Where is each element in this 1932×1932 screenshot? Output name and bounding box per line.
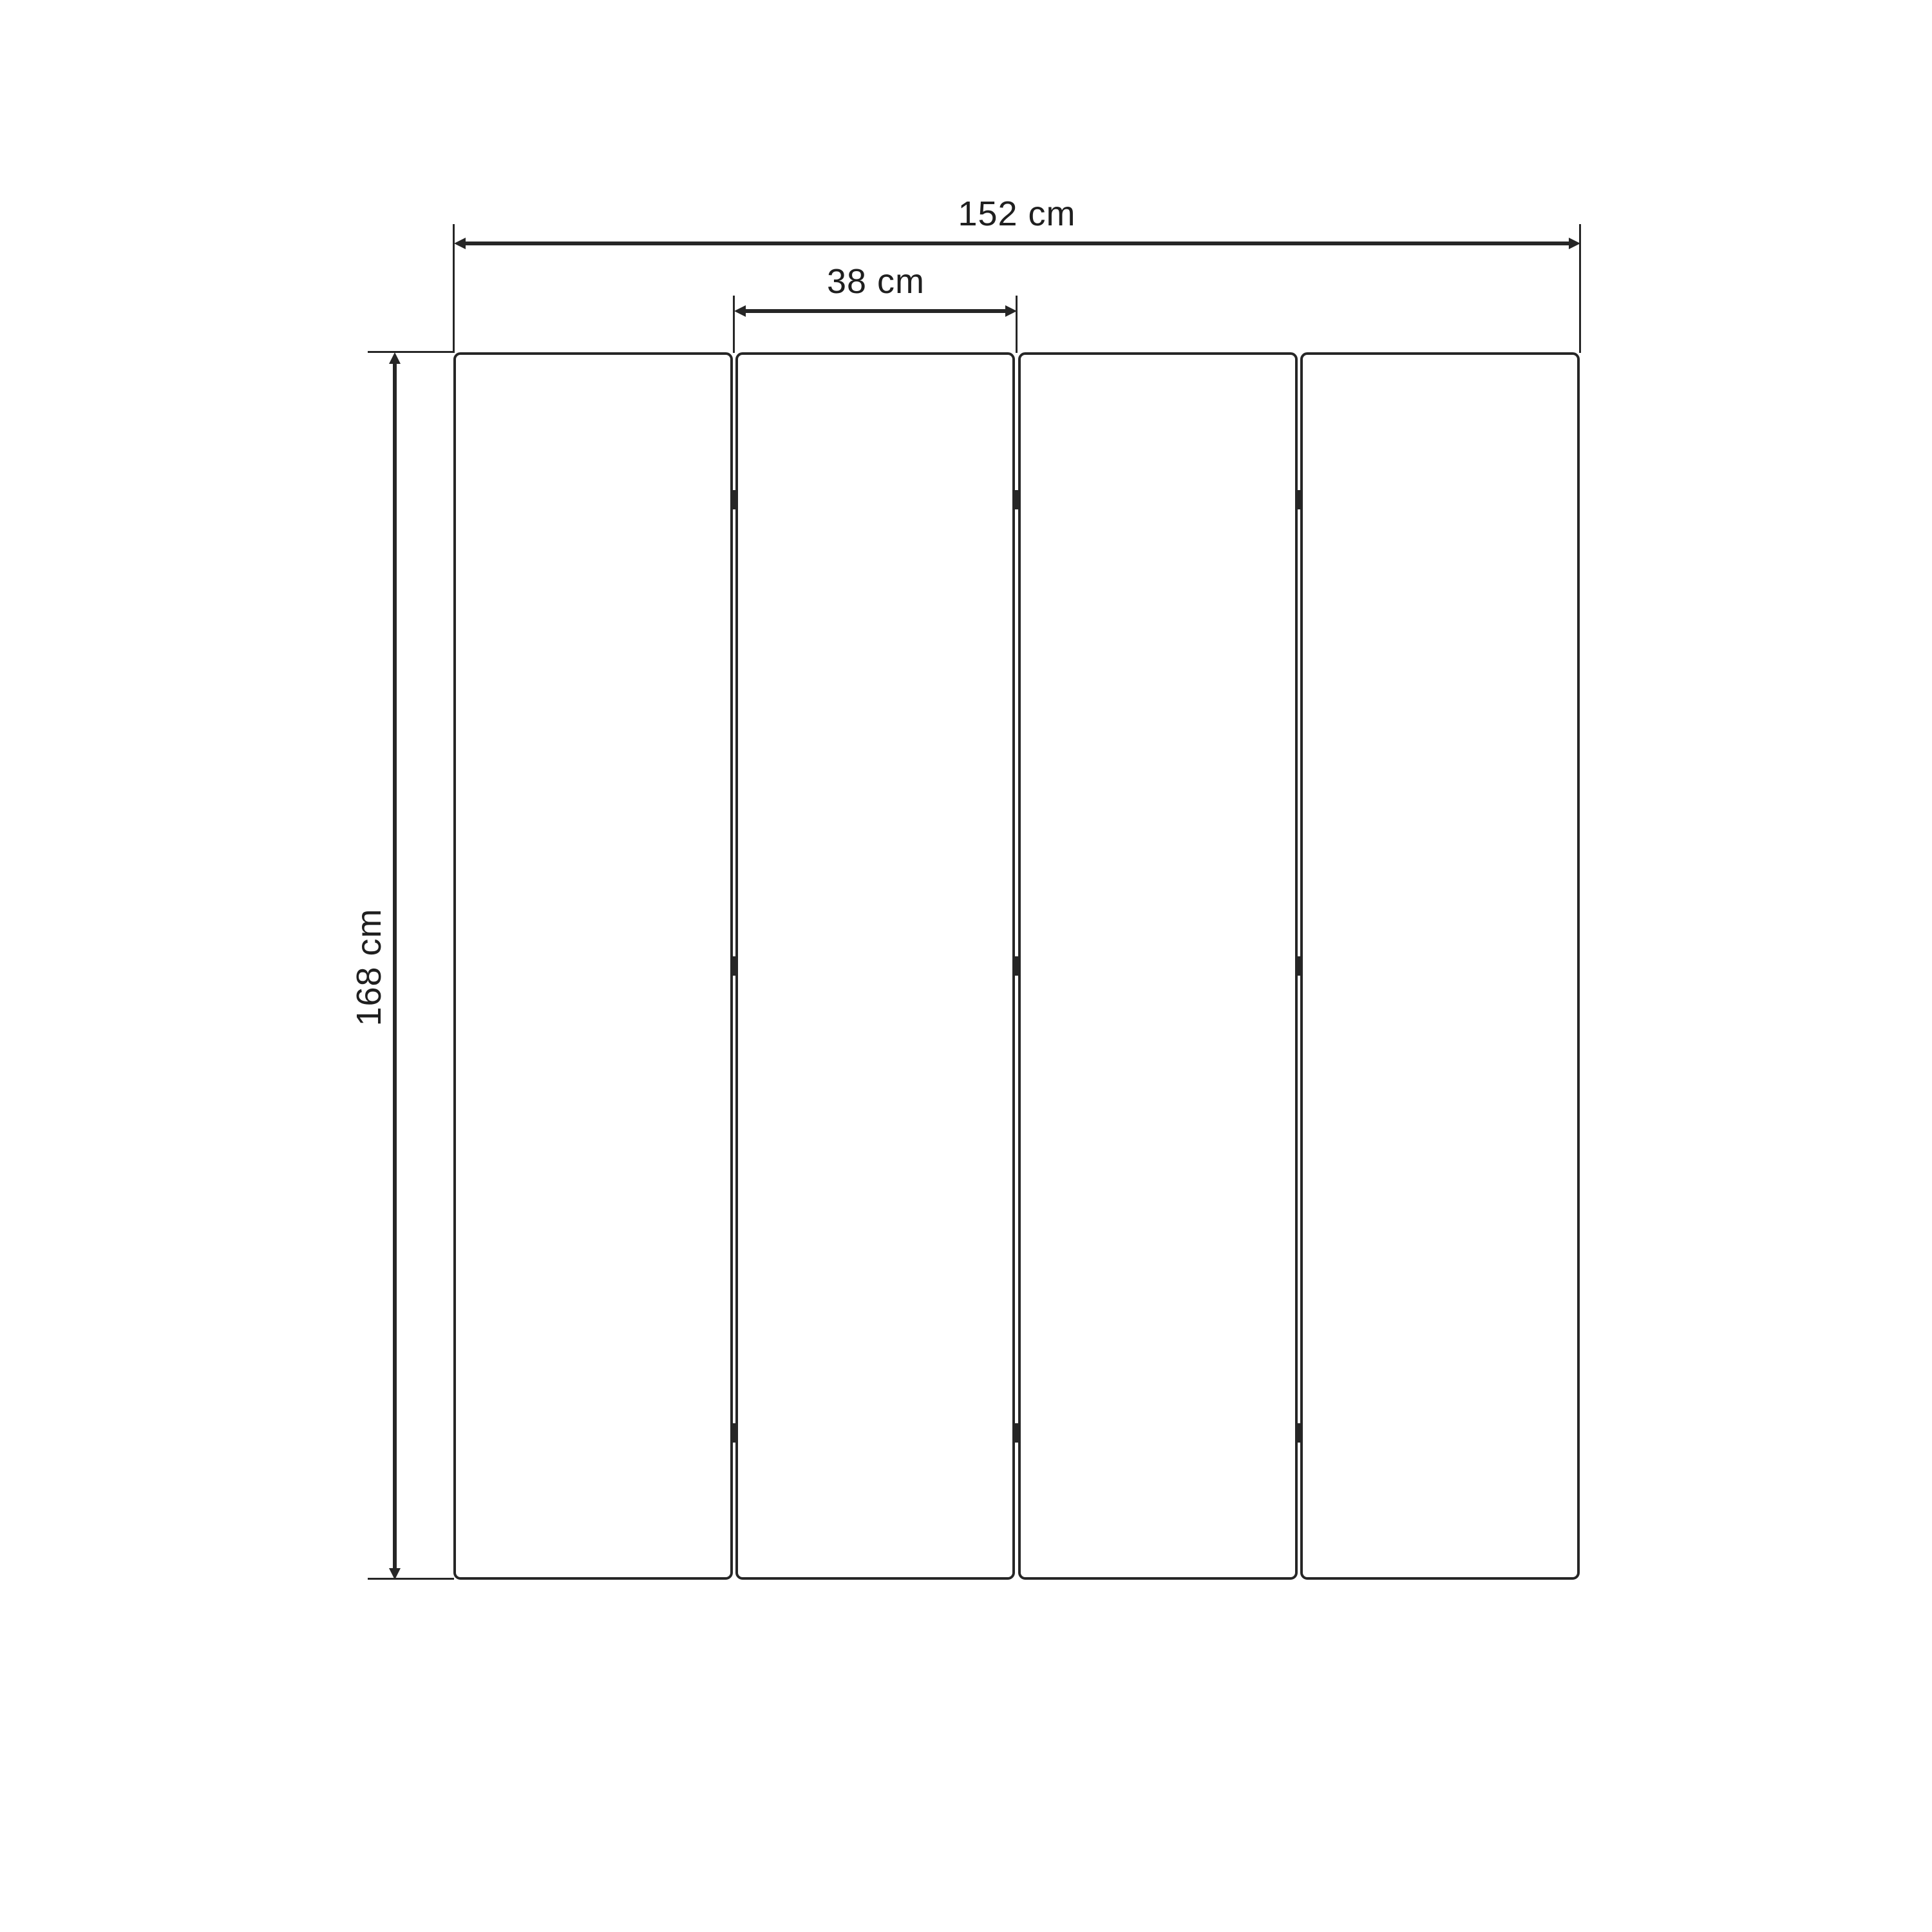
hinge-mark — [1295, 956, 1303, 976]
hinge-mark — [1295, 490, 1303, 509]
arrowhead-right-icon — [1569, 238, 1580, 249]
arrowhead-right-icon — [1005, 305, 1017, 317]
arrowhead-left-icon — [454, 238, 466, 249]
height-extension-line-bottom — [368, 1578, 454, 1580]
panel-width-extension-line-right — [1016, 296, 1018, 353]
arrowhead-up-icon — [389, 352, 401, 364]
total-width-dimension-line — [459, 241, 1573, 245]
height-dimension-label: 168 cm — [350, 838, 388, 1096]
hinge-mark — [730, 956, 738, 976]
height-dimension-line — [393, 359, 397, 1573]
panel-width-dimension-label: 38 cm — [747, 263, 1005, 300]
panel-2 — [735, 352, 1015, 1580]
total-width-dimension-label: 152 cm — [888, 195, 1146, 232]
hinge-mark — [1295, 1423, 1303, 1443]
arrowhead-down-icon — [389, 1568, 401, 1580]
dimension-diagram: 152 cm 38 cm 168 cm — [0, 0, 1932, 1932]
panel-4 — [1300, 352, 1580, 1580]
hinge-mark — [1012, 956, 1020, 976]
arrowhead-left-icon — [734, 305, 746, 317]
panel-width-dimension-line — [739, 309, 1012, 313]
panel-1 — [453, 352, 733, 1580]
panel-3 — [1018, 352, 1298, 1580]
hinge-mark — [1012, 1423, 1020, 1443]
height-extension-line-top — [368, 351, 454, 353]
hinge-mark — [1012, 490, 1020, 509]
panel-width-extension-line-left — [733, 296, 735, 353]
hinge-mark — [730, 490, 738, 509]
hinge-mark — [730, 1423, 738, 1443]
